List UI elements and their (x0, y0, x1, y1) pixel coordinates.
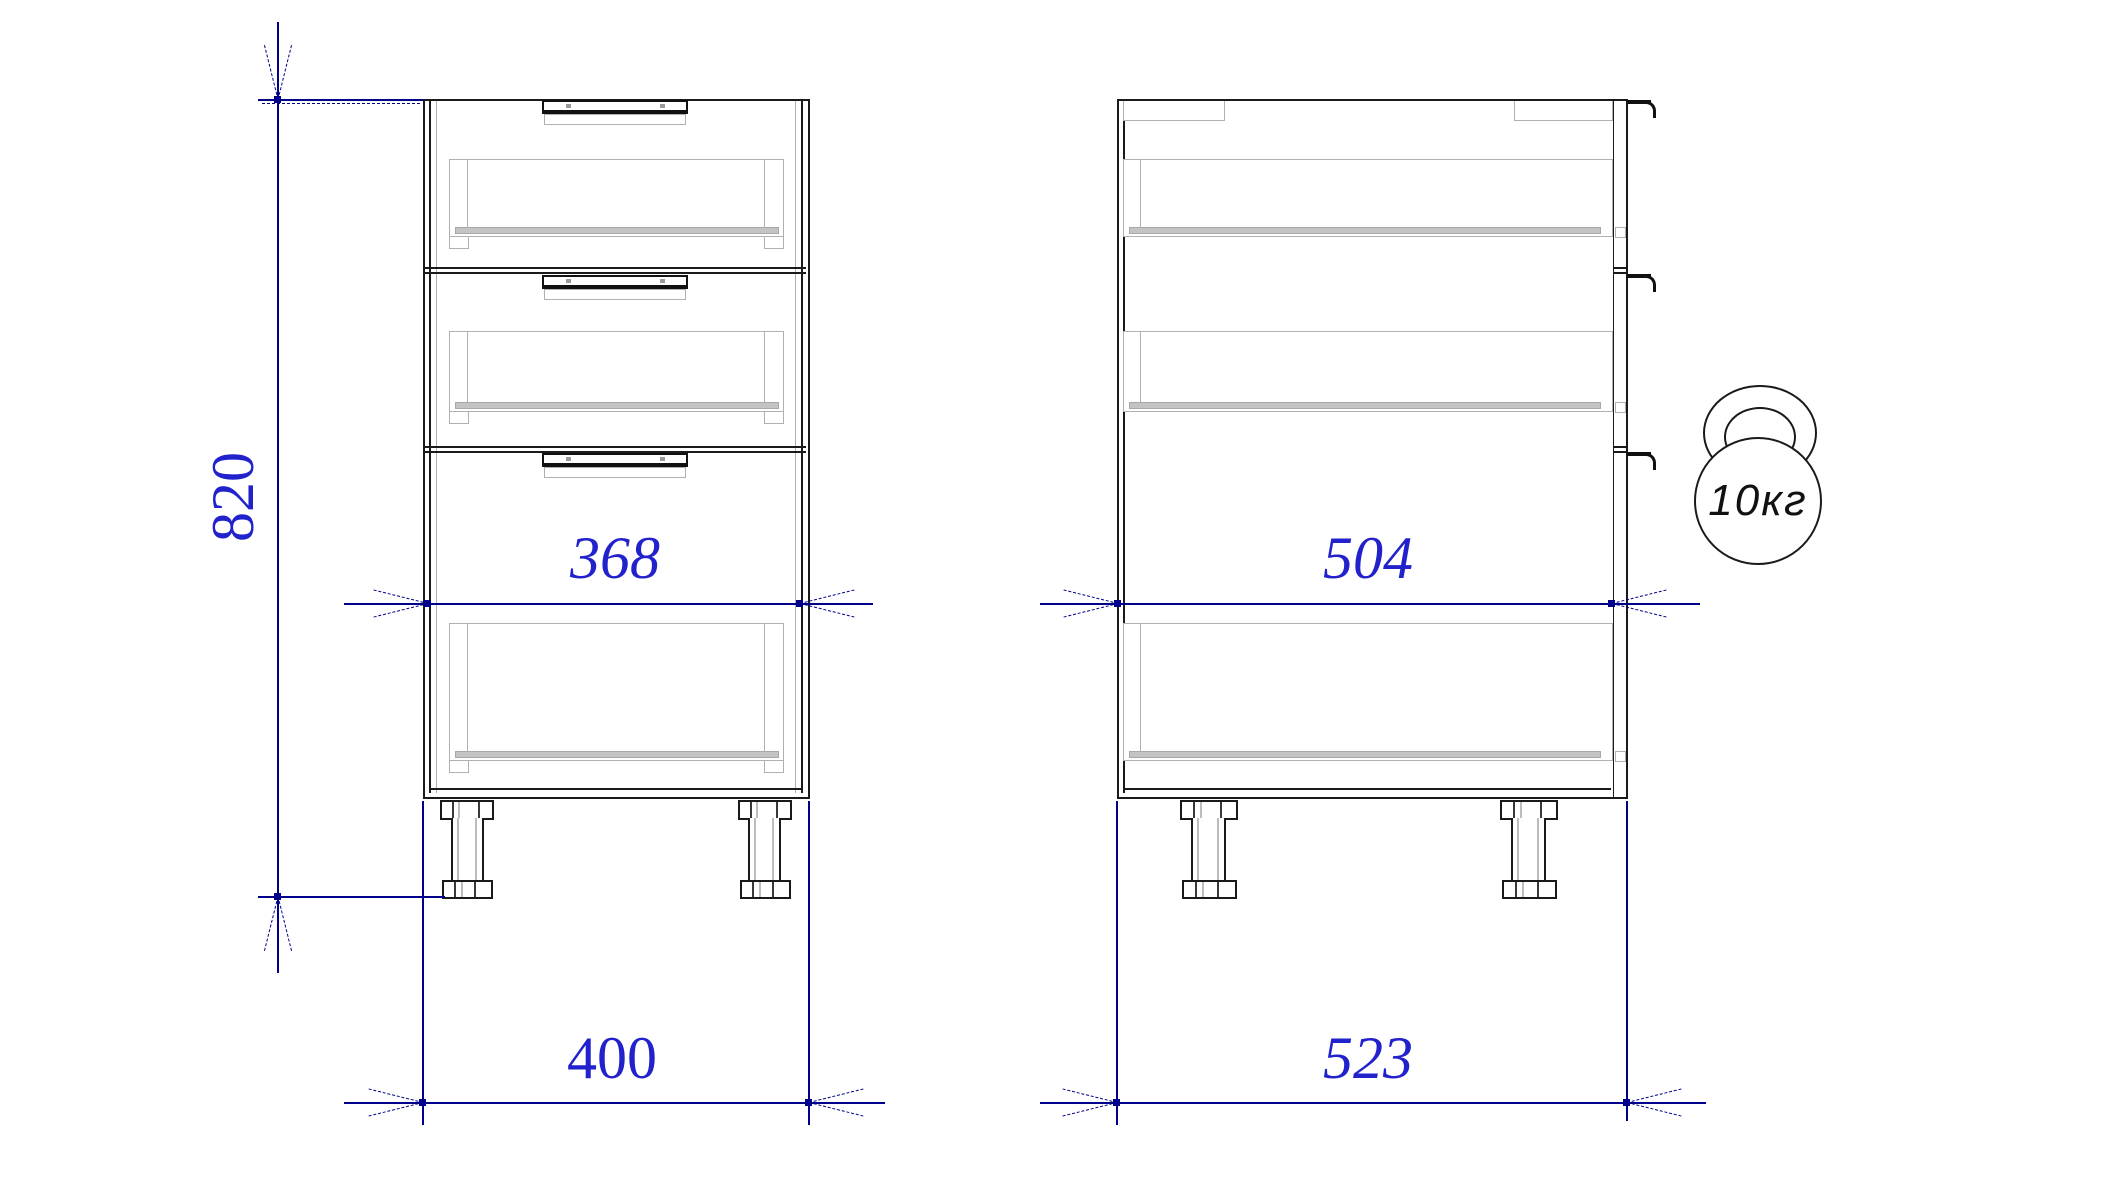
front-left-leg-stem (451, 818, 484, 880)
side-drawer2-box (1123, 331, 1613, 412)
side-left-leg-plate (1180, 800, 1238, 820)
front-division-2 (425, 446, 806, 448)
side-left-leg-stem (1191, 818, 1226, 880)
drawer3-box (449, 623, 784, 761)
drawer3-handle (542, 453, 688, 467)
side-top-stretcher-back (1514, 101, 1613, 121)
dimension-400-label: 400 (532, 1028, 692, 1088)
side-drawer1-box (1123, 159, 1613, 237)
drawer2-handle (542, 275, 688, 289)
side-left-leg-foot (1182, 880, 1237, 899)
side-top-stretcher-front (1123, 101, 1225, 121)
front-right-leg-foot (740, 880, 791, 899)
side-drawer-front-strip (1613, 99, 1628, 799)
kettlebell-body: 10кг (1694, 437, 1822, 565)
side-right-leg-foot (1502, 880, 1557, 899)
technical-drawing-canvas: 820 368 400 504 (0, 0, 2121, 1193)
front-left-leg-foot (442, 880, 493, 899)
drawer1-handle-recess (544, 114, 686, 125)
drawer3-handle-recess (544, 467, 686, 478)
dimension-523-label: 523 (1288, 1028, 1448, 1088)
front-left-leg-plate (440, 800, 494, 820)
drawer2-handle-recess (544, 289, 686, 300)
drawer1-handle (542, 100, 688, 114)
dimension-504-label: 504 (1288, 528, 1448, 588)
front-right-leg-plate (738, 800, 792, 820)
front-division-1 (425, 267, 806, 269)
side-drawer3-box (1123, 623, 1613, 761)
dimension-368-label: 368 (535, 528, 695, 588)
dimension-820-label: 820 (203, 437, 263, 557)
drawer2-box (449, 331, 784, 412)
drawer1-box (449, 159, 784, 237)
front-right-leg-stem (748, 818, 781, 880)
max-load-label: 10кг (1708, 476, 1807, 526)
side-right-leg-stem (1511, 818, 1546, 880)
side-right-leg-plate (1500, 800, 1558, 820)
